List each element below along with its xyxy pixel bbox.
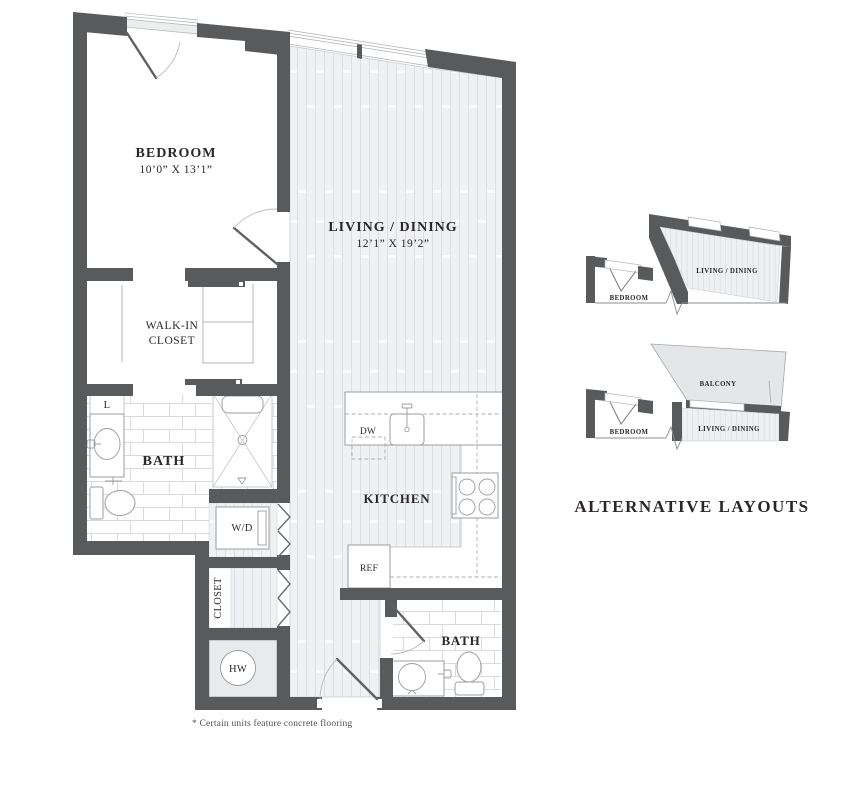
alt2-balcony xyxy=(651,344,786,408)
floor-plan-page: BEDROOM 10’0” X 13’1” LIVING / DINING 12… xyxy=(0,0,855,786)
dishwasher-label: DW xyxy=(360,427,376,437)
alt2-living-floor xyxy=(682,408,779,441)
footnote: * Certain units feature concrete floorin… xyxy=(192,718,352,729)
walk-in-closet-label-line2: CLOSET xyxy=(149,335,195,347)
washer-dryer-label: W/D xyxy=(231,523,252,534)
bedroom-door-swing xyxy=(234,209,277,228)
slider-notch-2 xyxy=(239,282,243,286)
toilet-bowl-main xyxy=(105,491,135,516)
wall-closet-top-left xyxy=(87,268,133,281)
alternative-layouts-title: ALTERNATIVE LAYOUTS xyxy=(574,497,809,516)
closet-bifold-door xyxy=(278,570,290,626)
water-heater-label: HW xyxy=(229,664,247,675)
alt2-wall-right xyxy=(779,411,790,441)
entry-jamb-left xyxy=(317,699,322,708)
wall-closet-hw-divider xyxy=(195,628,280,640)
wall-bottom-right xyxy=(377,697,516,710)
bath-main-label: BATH xyxy=(143,454,186,469)
wall-divider-mid xyxy=(277,262,290,503)
alt1-bedroom-jamb xyxy=(638,266,653,281)
wall-bedroom-header xyxy=(197,23,290,56)
bedroom-door-leaf xyxy=(234,228,277,264)
toilet-tank-main xyxy=(90,487,103,519)
alternative-layout-1: LIVING / DINING BEDROOM xyxy=(586,214,791,314)
wd-bifold-door xyxy=(278,504,290,557)
closet-label: CLOSET xyxy=(213,577,224,619)
refrigerator-label: REF xyxy=(360,564,378,574)
wall-bath-second-top xyxy=(340,588,502,600)
slider-notch-1 xyxy=(236,380,240,384)
alt2-bedroom-jamb xyxy=(638,399,653,414)
living-dining-label: LIVING / DINING xyxy=(328,220,457,235)
alt2-bedroom-door xyxy=(610,402,636,424)
wall-closet-top-right xyxy=(185,268,277,281)
alt2-bedroom-corner xyxy=(586,389,607,401)
wall-bath-top-left xyxy=(87,384,133,396)
bedroom-label: BEDROOM xyxy=(136,146,217,161)
alt2-bedroom-label: BEDROOM xyxy=(610,429,649,436)
wall-bath-bottom xyxy=(73,541,209,555)
wall-divider-upper xyxy=(277,48,290,212)
linen-label: L xyxy=(104,400,111,411)
alt1-bedroom-label: BEDROOM xyxy=(610,295,649,302)
alt1-wall-right xyxy=(779,246,791,304)
wall-right xyxy=(502,63,516,710)
alt1-bedroom-corner xyxy=(586,256,607,268)
bath-second-label: BATH xyxy=(441,633,480,648)
wall-left xyxy=(73,28,87,555)
alt1-bedroom-door xyxy=(610,269,636,291)
alt1-living-label: LIVING / DINING xyxy=(696,268,758,275)
living-dining-dimensions: 12’1” X 19’2” xyxy=(357,238,430,250)
alternative-layout-2: BALCONY LIVING / DINING BEDROOM xyxy=(586,344,790,449)
floor-plan-canvas: BEDROOM 10’0” X 13’1” LIVING / DINING 12… xyxy=(0,0,855,786)
alt2-living-label: LIVING / DINING xyxy=(698,426,760,433)
kitchen-label: KITCHEN xyxy=(363,491,430,506)
bedroom-window-sill xyxy=(125,19,198,34)
wall-bath-second-left xyxy=(380,658,393,697)
balcony-door-leaf xyxy=(127,33,156,78)
bedroom-dimensions: 10’0” X 13’1” xyxy=(140,164,213,176)
wall-bath-top-right xyxy=(196,384,277,396)
walk-in-closet-label-line1: WALK-IN xyxy=(146,320,199,332)
balcony-door-swing xyxy=(156,42,180,78)
toilet-tank-second xyxy=(455,682,484,695)
entry-jamb-right xyxy=(377,699,382,708)
sliding-door-closet xyxy=(188,281,245,287)
sliding-door-bath xyxy=(185,379,242,385)
vanity-second xyxy=(388,661,444,696)
alt2-balcony-label: BALCONY xyxy=(700,381,737,388)
wall-wd-closet-divider xyxy=(195,557,277,568)
closet-shelving xyxy=(203,284,253,363)
wall-divider-stub1 xyxy=(277,555,290,570)
wall-wd-top xyxy=(209,489,277,503)
toilet-bowl-second xyxy=(457,652,481,682)
wall-bottom-left xyxy=(195,697,322,710)
window-mullion xyxy=(357,44,362,59)
